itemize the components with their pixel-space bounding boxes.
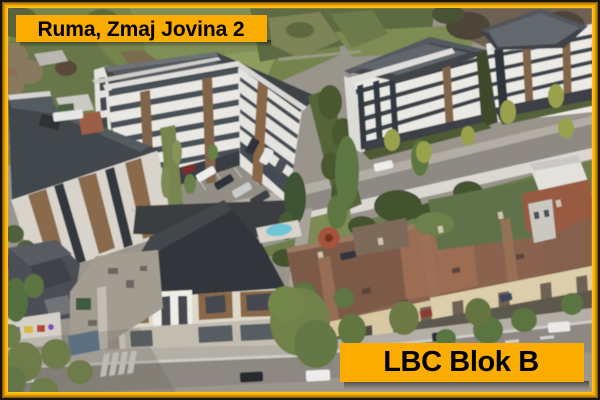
svg-text:Ruma, Zmaj Jovina 2: Ruma, Zmaj Jovina 2 [37,18,244,41]
svg-text:LBC Blok B: LBC Blok B [383,346,539,378]
